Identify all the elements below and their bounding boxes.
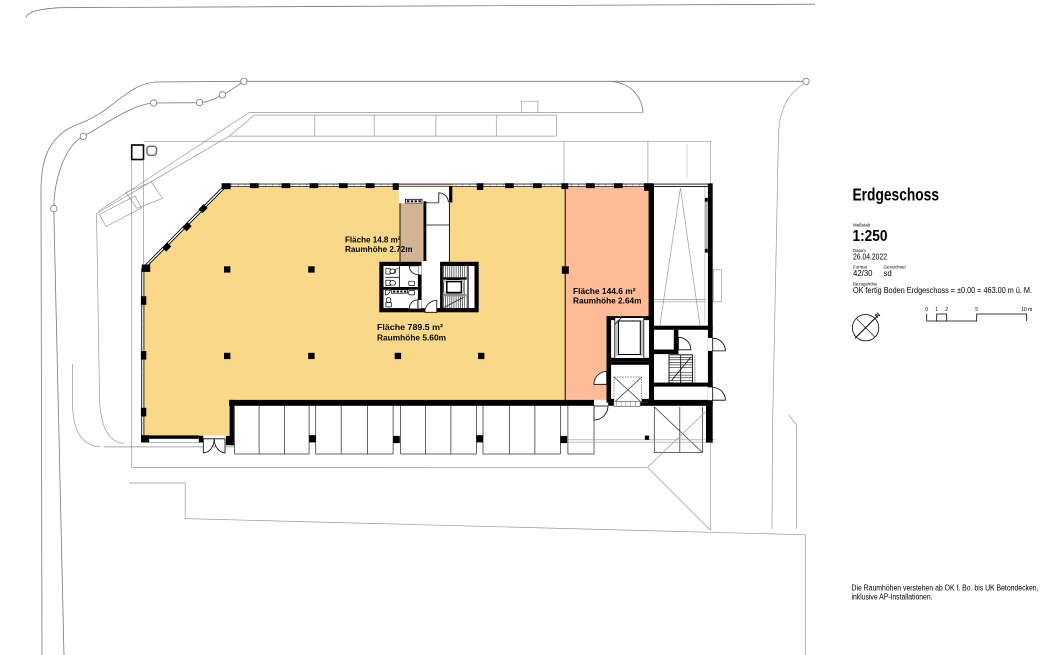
svg-text:Maßstab: Maßstab (853, 223, 871, 228)
svg-text:Raumhöhe 2.72m: Raumhöhe 2.72m (345, 245, 413, 254)
svg-text:Fläche 789.5 m²: Fläche 789.5 m² (377, 322, 443, 332)
svg-text:Erdgeschoss: Erdgeschoss (853, 185, 940, 205)
svg-text:Fläche 14.8 m²: Fläche 14.8 m² (345, 235, 401, 244)
svg-text:sd: sd (884, 269, 892, 278)
svg-text:26.04.2022: 26.04.2022 (853, 252, 887, 261)
svg-text:Raumhöhe 5.60m: Raumhöhe 5.60m (377, 332, 446, 342)
svg-text:42/30: 42/30 (853, 269, 873, 278)
svg-text:5: 5 (975, 307, 978, 313)
svg-text:10 m: 10 m (1021, 307, 1032, 313)
svg-text:inklusive AP-Installationen.: inklusive AP-Installationen. (852, 593, 933, 602)
svg-text:1:250: 1:250 (853, 228, 888, 245)
svg-text:OK fertig Boden Erdgeschoss =: OK fertig Boden Erdgeschoss = ±0.00 = 46… (853, 286, 1032, 295)
svg-text:0: 0 (925, 307, 928, 313)
svg-text:1: 1 (935, 307, 938, 313)
svg-text:Fläche 144.6 m²: Fläche 144.6 m² (573, 287, 636, 296)
svg-text:2: 2 (945, 307, 948, 313)
svg-text:Raumhöhe 2.64m: Raumhöhe 2.64m (573, 296, 642, 305)
svg-text:Die Raumhöhen verstehen ab OK: Die Raumhöhen verstehen ab OK f. Bo. bis… (852, 584, 1039, 593)
